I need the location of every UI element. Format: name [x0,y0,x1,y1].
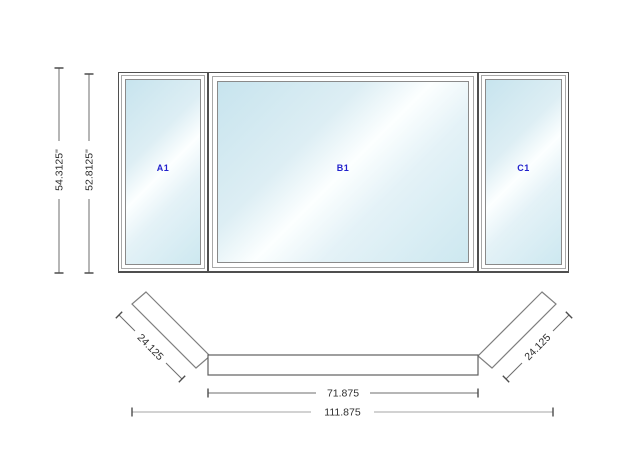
height-dim-overall-label: 54.3125" [54,149,66,191]
plan-right-flanker-shape [478,292,556,368]
window-drawing: A1 B1 C1 [0,0,634,457]
overall-width-dim-label: 111.875 [324,407,361,419]
center-width-dim: 71.875 [208,388,478,400]
dimension-overlay: 54.3125" 52.8125" 24.125 24.125 71.875 [0,0,634,457]
plan-center-unit-shape [208,355,478,375]
left-flanker-dim-label: 24.125 [135,332,166,363]
plan-view [132,292,556,375]
height-dim-overall: 54.3125" [54,68,66,273]
overall-width-dim: 111.875 [132,407,553,419]
height-dim-frame: 52.8125" [84,74,96,273]
right-flanker-dim-label: 24.125 [522,332,553,363]
height-dim-frame-label: 52.8125" [84,149,96,191]
plan-left-flanker-shape [132,292,210,368]
center-width-dim-label: 71.875 [327,388,359,400]
